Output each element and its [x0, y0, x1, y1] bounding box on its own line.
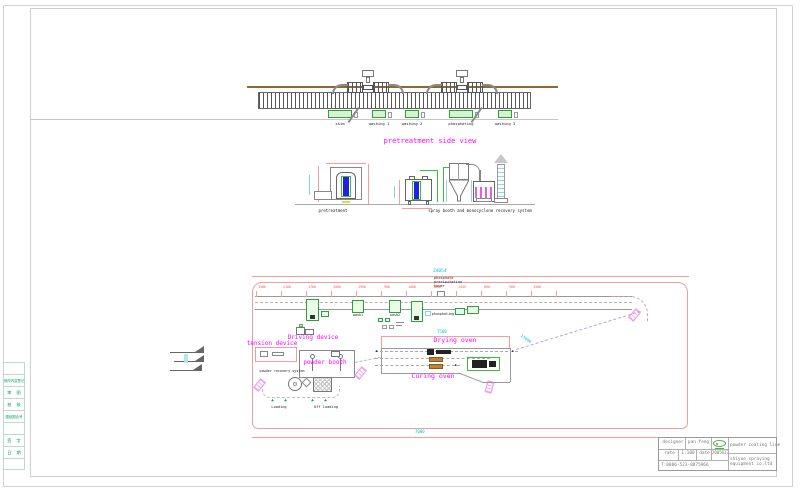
date-label: date [697, 451, 712, 456]
powder-booth-label: powder booth [303, 360, 346, 367]
grid-line [711, 438, 712, 449]
plan-tank-label: wash2 [390, 314, 400, 318]
loading-label: Loading [271, 405, 286, 409]
rev-row-label: 校 核 [4, 399, 24, 411]
bottom-dim: 7000 [415, 430, 425, 435]
drain-mark [342, 201, 350, 203]
filter-cartridges [475, 187, 493, 198]
blower-coil [347, 82, 363, 93]
cyclone-center-line [458, 163, 459, 180]
tank-mark [310, 315, 315, 319]
grid-line [659, 449, 728, 450]
company-name: shiyue spraying equipment co.ltd [730, 457, 776, 467]
rev-row-label: 修改内容签记 [4, 375, 24, 387]
exhaust-stack [497, 164, 505, 202]
dim-text: 900 [509, 286, 515, 290]
plan-tank-aux [385, 318, 390, 322]
drawing-sheet: skim washing 1 washing 2 phosphating was… [0, 0, 800, 493]
stack-base [494, 198, 508, 203]
tiny-note-stroke [396, 322, 404, 323]
rev-row-label: 签 字 [4, 435, 24, 447]
powder-duct [443, 167, 444, 202]
blower-coil [467, 82, 483, 93]
powder-recovery-label: powder recovery system [260, 370, 305, 374]
ground-line-mid [295, 204, 535, 205]
section-arrow [174, 361, 204, 362]
dim-text: 3000 [333, 286, 341, 290]
dim-line-top [252, 276, 689, 277]
conveyor-loop [262, 386, 340, 398]
small-unit [382, 325, 387, 329]
booth-leg [408, 201, 411, 205]
dim-line-cyan [309, 175, 310, 195]
driving-device-motor [299, 324, 303, 327]
dim-text: 1500 [258, 286, 266, 290]
rate-value: 1:100 [679, 451, 697, 456]
dim-line [368, 164, 369, 204]
section-mark [184, 354, 188, 363]
duct-elbow-icon [426, 84, 442, 94]
drop-marker-icon: ◢◣ [271, 398, 273, 402]
designer-value: pan feng [686, 440, 711, 445]
company-logo-underline [715, 448, 724, 449]
section-arrow-flag [195, 355, 204, 361]
tension-device-part [272, 352, 284, 356]
blower-coil [373, 82, 389, 93]
blower-pipe [366, 77, 370, 83]
plan-tank-wash2 [389, 300, 401, 313]
date-value: 2005617 [712, 451, 728, 456]
oven-right-edge [510, 348, 511, 382]
dim-line [326, 163, 366, 164]
powder-duct [437, 170, 438, 202]
dim-line-bottom [252, 437, 689, 438]
dim-text: 2100 [283, 286, 291, 290]
tank-label: washing 1 [369, 122, 390, 126]
blower-pipe [460, 77, 464, 83]
company-logo-dot [716, 443, 718, 445]
product-name: powder coating line [730, 443, 776, 448]
offloading-label: Off loading [314, 405, 338, 409]
burner-unit [472, 360, 487, 368]
side-view-title: pretreatment side view [384, 137, 477, 145]
section-arrow-flag [193, 364, 202, 370]
rev-row-label: 日 期 [4, 447, 24, 459]
booth-leg [426, 201, 429, 205]
heat-exchanger [429, 364, 443, 369]
dim-text: 1700 [308, 286, 316, 290]
spray-section-label: spray booth and monocyclone recovery sys… [428, 209, 532, 214]
tank-label: washing 3 [495, 122, 516, 126]
powder-duct [420, 170, 438, 171]
section-arrow-flag [195, 346, 204, 352]
burner-unit [436, 350, 451, 354]
grid-line [678, 449, 679, 460]
plan-tank [467, 306, 479, 314]
dim-text: 1950 [358, 286, 366, 290]
dim-text: 900 [384, 286, 390, 290]
blower-center [363, 85, 373, 90]
rev-row-label: 图纸图合号 [4, 411, 24, 423]
tank-washing2 [405, 110, 419, 118]
drying-oven-label: Drying oven [433, 337, 476, 344]
filter-tray [476, 198, 492, 202]
plan-tank-label: wash1 [353, 314, 363, 318]
tank-fitting [388, 112, 392, 118]
flow-arrow-icon: ▶ [512, 349, 514, 353]
workpiece [343, 177, 349, 196]
side-table [314, 191, 332, 200]
rate-label: rate [660, 451, 679, 456]
grid-line [728, 438, 729, 470]
tank-fitting [421, 112, 425, 118]
dim-text: 1800 [433, 286, 441, 290]
flow-arrow-icon: ▶ [455, 363, 457, 367]
cyclone-leg [471, 180, 472, 202]
tank-mark [414, 316, 419, 320]
phone-value: T:0086-523-8875966 [661, 463, 727, 468]
overall-dim: 24054 [433, 269, 447, 274]
tank-skim [328, 110, 352, 118]
up-arrow-icon [494, 154, 508, 163]
section-arrow [170, 352, 204, 353]
plan-tank-aux [425, 311, 431, 316]
section-arrow [170, 370, 202, 371]
rev-row-label: 审 图 [4, 387, 24, 399]
dim-text: 1500 [533, 286, 541, 290]
plan-tank-aux [321, 311, 329, 317]
tension-device-part [260, 351, 268, 357]
plan-tank-phosphating [455, 308, 465, 315]
heat-exchanger [429, 357, 443, 362]
cyclone-leg [446, 180, 447, 202]
grid-line [711, 449, 712, 460]
duct-elbow-icon [332, 84, 348, 94]
tank-fitting [514, 112, 518, 118]
booth-control-box [331, 351, 340, 357]
tank-label: skim [335, 122, 344, 126]
drop-marker-icon: ◢◣ [311, 398, 313, 402]
grid-line [728, 453, 776, 454]
oven-bottom-low [482, 382, 510, 383]
tiny-note-stroke [396, 325, 402, 326]
grid-line [696, 449, 697, 460]
revision-table: 修改内容签记 审 图 校 核 图纸图合号 签 字 日 期 [3, 362, 25, 470]
ground-line-top [30, 119, 558, 120]
designer-label: designer [660, 440, 686, 445]
tank-washing1 [372, 110, 386, 118]
flow-arrow-icon: ▶ [376, 349, 378, 353]
dim-text: 600 [484, 286, 490, 290]
tank-label: phosphating [448, 122, 473, 126]
tank-washing3 [498, 110, 512, 118]
plan-tank-label: phosphating [432, 313, 454, 317]
blower-top-box [456, 70, 468, 77]
pretreatment-section-label: pretreatment [319, 209, 348, 214]
title-block: designer pan feng rate 1:100 date 200561… [658, 437, 777, 471]
curing-oven-label: Curing oven [411, 373, 454, 380]
tank-phosphating [449, 110, 473, 118]
oven-conveyor-line [375, 365, 460, 366]
company-logo [713, 440, 726, 447]
burner-unit [427, 349, 434, 355]
drop-marker-icon: ◢◣ [324, 398, 326, 402]
plan-tank-aux [378, 318, 383, 322]
tunnel-hatch [258, 92, 531, 109]
blower-center [457, 85, 467, 90]
blower-top-box [362, 70, 374, 77]
workpiece [414, 182, 419, 199]
blower-coil [441, 82, 457, 93]
dim-line-cyan [394, 186, 395, 198]
drop-marker-icon: ◢◣ [284, 398, 286, 402]
small-unit [389, 325, 394, 329]
grid-line [685, 438, 686, 449]
drying-dim: 7500 [437, 330, 447, 335]
tank-label: washing 2 [402, 122, 423, 126]
dim-ticks [256, 291, 558, 297]
plan-tank-wash1 [352, 300, 364, 313]
cyclone-funnel [449, 180, 469, 202]
dim-text: 1445 [458, 286, 466, 290]
dim-text: 1000 [408, 286, 416, 290]
burner-unit [489, 361, 496, 367]
grid-line [659, 460, 728, 461]
dim-line [399, 180, 400, 204]
monorail-line [247, 86, 558, 88]
